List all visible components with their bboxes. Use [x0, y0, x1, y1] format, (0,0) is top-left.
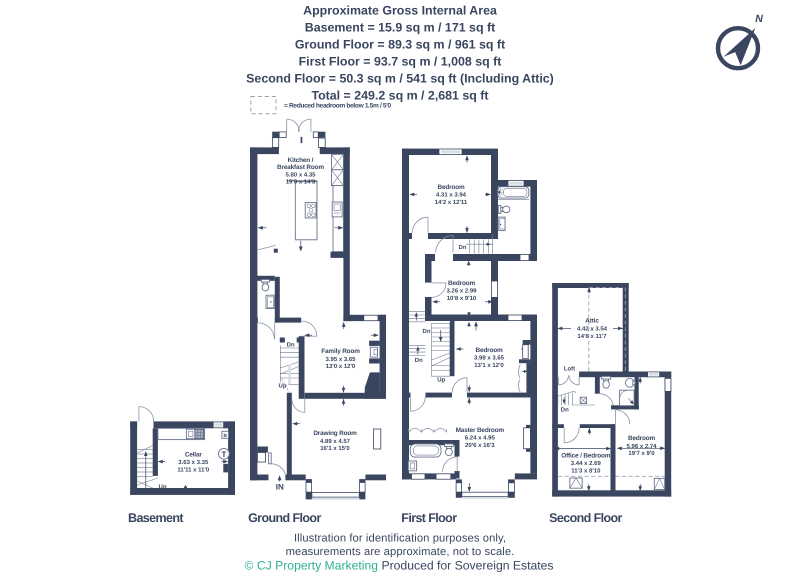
- svg-text:11'3 x 8'10: 11'3 x 8'10: [571, 467, 601, 474]
- svg-text:Attic: Attic: [585, 318, 599, 325]
- svg-text:Dn: Dn: [459, 244, 467, 251]
- svg-text:Bedroom: Bedroom: [438, 184, 465, 191]
- svg-text:Kitchen /: Kitchen /: [288, 157, 314, 164]
- svg-text:T: T: [221, 450, 226, 459]
- svg-text:Dn: Dn: [415, 357, 423, 364]
- svg-text:5.96 x 2.74: 5.96 x 2.74: [626, 443, 657, 450]
- svg-text:14'2 x 12'11: 14'2 x 12'11: [435, 199, 468, 206]
- svg-text:Second Floor: Second Floor: [549, 511, 622, 525]
- svg-text:4.42 x 3.54: 4.42 x 3.54: [577, 325, 608, 332]
- svg-text:Dn: Dn: [423, 328, 431, 335]
- svg-text:Bedroom: Bedroom: [448, 280, 475, 287]
- svg-text:Second Floor = 50.3 sq m / 541: Second Floor = 50.3 sq m / 541 sq ft (In…: [246, 71, 554, 85]
- svg-text:First Floor: First Floor: [401, 511, 457, 525]
- svg-text:Bedroom: Bedroom: [476, 347, 503, 354]
- svg-text:Family Room: Family Room: [321, 348, 360, 355]
- svg-text:Up: Up: [159, 484, 167, 491]
- svg-text:N: N: [755, 13, 763, 25]
- svg-text:Total = 249.2 sq m / 2,681 sq: Total = 249.2 sq m / 2,681 sq ft: [311, 88, 488, 102]
- svg-text:13'1 x 12'0: 13'1 x 12'0: [474, 362, 504, 369]
- svg-text:Bedroom: Bedroom: [628, 435, 655, 442]
- svg-text:Loft: Loft: [564, 366, 575, 373]
- svg-text:13'0 x 12'0: 13'0 x 12'0: [326, 363, 356, 370]
- svg-text:19'7 x 9'0: 19'7 x 9'0: [628, 450, 655, 457]
- svg-text:Drawing Room: Drawing Room: [313, 430, 357, 437]
- svg-text:IN: IN: [276, 483, 284, 492]
- svg-text:3.63 x 3.35: 3.63 x 3.35: [178, 459, 209, 466]
- svg-text:Up: Up: [279, 382, 287, 389]
- svg-text:First Floor = 93.7 sq m / 1,00: First Floor = 93.7 sq m / 1,008 sq ft: [299, 54, 502, 68]
- svg-text:= Reduced headroom below 1.5m: = Reduced headroom below 1.5m / 5'0: [284, 103, 391, 110]
- svg-text:Basement = 15.9 sq m / 171 sq: Basement = 15.9 sq m / 171 sq ft: [305, 20, 495, 34]
- svg-text:Basement: Basement: [128, 511, 184, 525]
- svg-text:Office / Bedroom: Office / Bedroom: [561, 453, 611, 460]
- svg-text:19'0 x 14'3: 19'0 x 14'3: [286, 178, 316, 185]
- svg-text:4.31 x 3.94: 4.31 x 3.94: [436, 192, 467, 199]
- svg-text:measurements are approximate,: measurements are approximate, not to sca…: [286, 546, 515, 558]
- svg-text:6.24 x 4.95: 6.24 x 4.95: [465, 435, 496, 442]
- svg-text:B: B: [223, 433, 227, 439]
- svg-text:Ground Floor: Ground Floor: [248, 511, 321, 525]
- svg-text:4.89 x 4.57: 4.89 x 4.57: [320, 438, 351, 445]
- svg-text:20'6 x 16'3: 20'6 x 16'3: [465, 442, 495, 449]
- svg-text:Cellar: Cellar: [185, 452, 203, 459]
- svg-text:3.98 x 3.65: 3.98 x 3.65: [474, 355, 505, 362]
- svg-text:3.26 x 2.99: 3.26 x 2.99: [446, 288, 477, 295]
- svg-text:3.44 x 2.69: 3.44 x 2.69: [571, 460, 602, 467]
- svg-text:Up: Up: [437, 377, 445, 384]
- svg-text:14'6 x 11'7: 14'6 x 11'7: [577, 333, 607, 340]
- svg-text:10'8 x 9'10: 10'8 x 9'10: [447, 295, 477, 302]
- svg-text:Illustration for identificatio: Illustration for identification purposes…: [294, 533, 506, 545]
- svg-text:3.95 x 3.65: 3.95 x 3.65: [325, 356, 356, 363]
- svg-text:Dn: Dn: [287, 342, 295, 349]
- svg-text:11'11 x 11'0: 11'11 x 11'0: [177, 466, 210, 473]
- svg-text:Breakfast Room: Breakfast Room: [277, 164, 324, 171]
- svg-text:Ground Floor = 89.3 sq m / 961: Ground Floor = 89.3 sq m / 961 sq ft: [295, 37, 505, 51]
- svg-text:Approximate Gross Internal Are: Approximate Gross Internal Area: [303, 3, 497, 17]
- svg-text:5.80 x 4.35: 5.80 x 4.35: [285, 172, 316, 179]
- svg-text:16'1 x 15'0: 16'1 x 15'0: [320, 445, 350, 452]
- svg-text:Master Bedroom: Master Bedroom: [456, 427, 505, 434]
- svg-text:Dn: Dn: [561, 407, 569, 414]
- svg-text:© CJ Property Marketing Produ: © CJ Property Marketing Produced for Sov…: [244, 559, 553, 573]
